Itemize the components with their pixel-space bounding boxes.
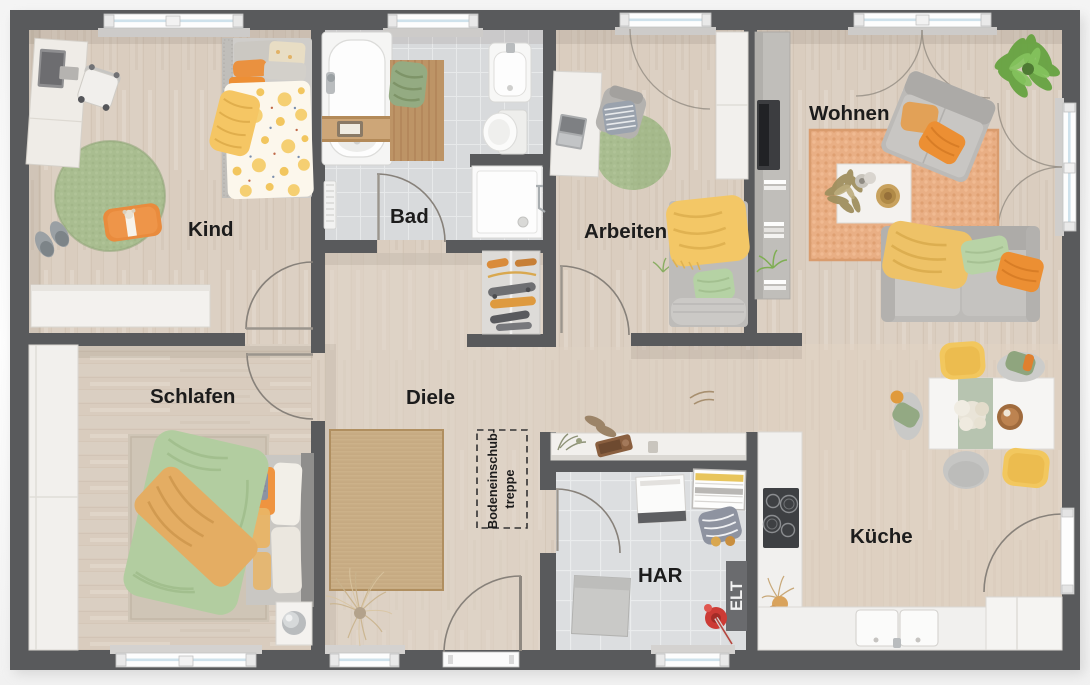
svg-text:treppe: treppe xyxy=(502,469,517,508)
svg-text:Bad: Bad xyxy=(390,205,429,228)
svg-text:HAR: HAR xyxy=(638,564,683,587)
svg-text:Wohnen: Wohnen xyxy=(809,102,889,125)
svg-text:Küche: Küche xyxy=(850,525,913,548)
svg-text:Arbeiten: Arbeiten xyxy=(584,220,667,243)
svg-text:Schlafen: Schlafen xyxy=(150,385,235,408)
svg-text:ELT: ELT xyxy=(728,581,746,611)
svg-text:Bodeneinschub-: Bodeneinschub- xyxy=(485,429,500,529)
svg-text:Kind: Kind xyxy=(188,218,234,241)
svg-text:Diele: Diele xyxy=(406,386,455,409)
